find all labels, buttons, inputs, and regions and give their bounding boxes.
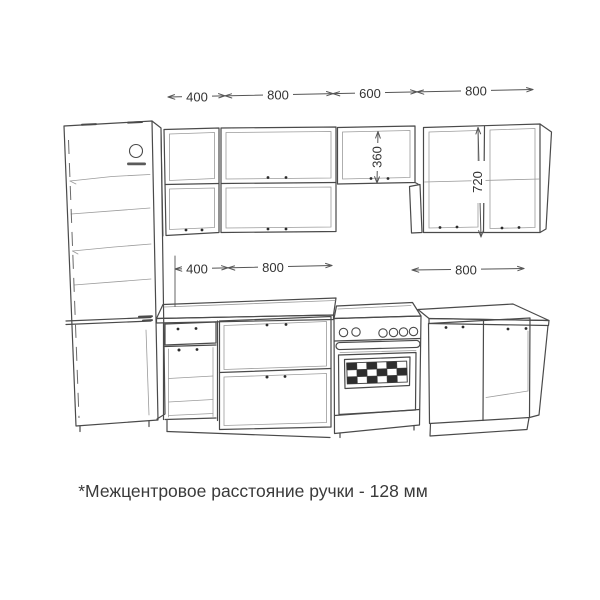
fridge-logo-text — [127, 163, 146, 166]
dim-upper-800a: 800 — [267, 88, 289, 103]
upper-cabinet-800-left — [221, 127, 336, 233]
upper-cabinet-side-panel — [410, 185, 423, 234]
dim-upper-800b: 800 — [465, 84, 487, 99]
base-cabinet-400 — [164, 321, 218, 421]
kitchen-drawing: 400 800 600 800 400 800 800 360 720 *М — [0, 0, 600, 600]
dimension-line-base: 400 800 800 — [175, 256, 524, 307]
upper-cabinet-400 — [161, 128, 219, 236]
kitchen-elevation-page: 400 800 600 800 400 800 800 360 720 *М — [0, 0, 600, 600]
fridge-handle — [139, 316, 152, 317]
refrigerator — [64, 121, 165, 432]
dim-height-360-label: 360 — [370, 146, 385, 168]
dimension-height-360: 360 — [370, 132, 385, 184]
dim-base-400: 400 — [186, 262, 208, 277]
dim-upper-400: 400 — [186, 89, 208, 104]
dim-base-800b: 800 — [455, 262, 477, 277]
countertop-left — [157, 298, 337, 323]
base-cabinet-800-drawers — [220, 317, 332, 430]
dim-upper-600: 600 — [359, 86, 381, 101]
dim-base-800a: 800 — [262, 260, 284, 275]
handle-spacing-note: *Межцентровое расстояние ручки - 128 мм — [78, 481, 428, 501]
upper-cabinet-800-right — [424, 124, 552, 233]
oven-grill — [347, 361, 408, 384]
dimension-line-upper: 400 800 600 800 — [168, 84, 533, 105]
stove — [334, 303, 421, 438]
base-cabinet-800-right — [429, 318, 549, 436]
oven-handle — [336, 340, 420, 349]
fridge-logo-icon — [130, 145, 143, 158]
dim-height-720-label: 720 — [470, 171, 485, 193]
stove-knobs — [339, 327, 417, 337]
